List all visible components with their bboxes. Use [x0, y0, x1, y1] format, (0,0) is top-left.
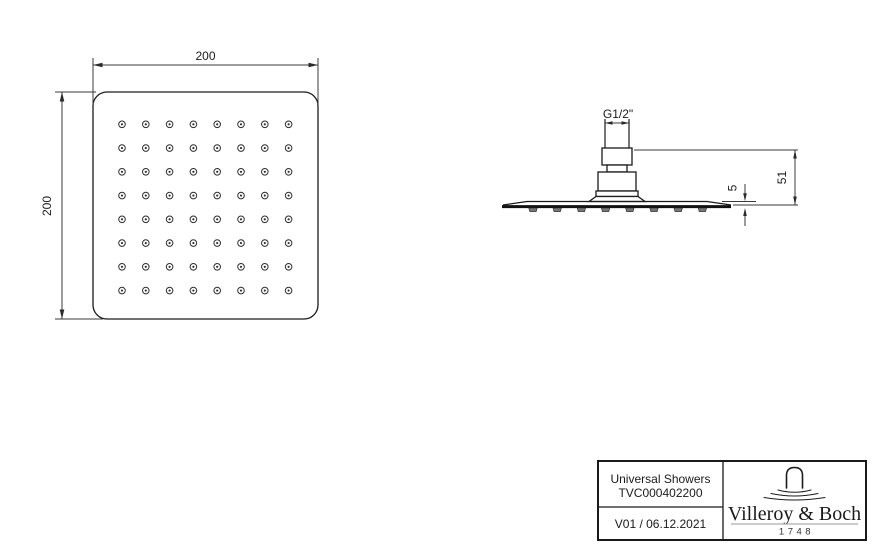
nozzle-center-dot	[216, 194, 218, 196]
nozzle-center-dot	[145, 147, 147, 149]
dimension-overall-height: 51	[634, 150, 798, 205]
nozzle-center-dot	[192, 266, 194, 268]
nozzle-center-dot	[264, 266, 266, 268]
nozzle-center-dot	[240, 242, 242, 244]
arrowhead-left	[93, 63, 103, 68]
nozzle-center-dot	[121, 242, 123, 244]
nozzle-center-dot	[169, 266, 171, 268]
thread-size-label: G1/2"	[603, 107, 633, 121]
nozzle-center-dot	[169, 194, 171, 196]
title-block-info-cell: Universal Showers TVC000402200 V01 / 06.…	[610, 472, 710, 531]
nozzle-center-dot	[192, 218, 194, 220]
dimension-width-label: 200	[195, 49, 215, 63]
nozzle-center-dot	[145, 123, 147, 125]
arrowhead-bottom	[793, 197, 797, 206]
nozzle-center-dot	[192, 289, 194, 291]
nozzle-center-dot	[240, 289, 242, 291]
nozzle-center-dot	[145, 171, 147, 173]
side-view: G1/2" 51	[502, 107, 798, 226]
nozzle-center-dot	[121, 194, 123, 196]
plate-nozzle-bump	[529, 208, 537, 212]
nozzle-center-dot	[121, 266, 123, 268]
nozzle-center-dot	[288, 289, 290, 291]
arrowhead-up	[743, 208, 747, 216]
arrowhead-top	[60, 92, 65, 102]
nozzle-center-dot	[216, 289, 218, 291]
nozzle-center-dot	[288, 194, 290, 196]
nozzle-center-dot	[288, 123, 290, 125]
overall-height-label: 51	[775, 171, 789, 185]
vb-ripple-icon	[764, 498, 825, 501]
nozzle-center-dot	[240, 123, 242, 125]
nozzle-center-dot	[192, 171, 194, 173]
plate-nozzle-bump	[674, 208, 682, 212]
arrowhead-bottom	[60, 310, 65, 320]
nozzle-center-dot	[169, 171, 171, 173]
nozzle-center-dot	[216, 147, 218, 149]
nozzle-center-dot	[264, 147, 266, 149]
nozzle-center-dot	[288, 266, 290, 268]
connector-lower-block	[598, 172, 636, 191]
plate-nozzle-bump	[698, 208, 706, 212]
connector-base-step	[596, 191, 638, 197]
nozzle-center-dot	[216, 123, 218, 125]
dimension-height-label: 200	[40, 196, 54, 216]
nozzle-center-dot	[240, 218, 242, 220]
nozzle-center-dot	[192, 147, 194, 149]
nozzle-center-dot	[145, 266, 147, 268]
shower-plate-top-outline	[93, 92, 318, 319]
nozzle-center-dot	[216, 266, 218, 268]
arrowhead-down	[743, 193, 747, 201]
plate-nozzle-bump	[626, 208, 634, 212]
nozzle-center-dot	[216, 218, 218, 220]
connector-neck	[607, 165, 627, 172]
nozzle-center-dot	[192, 194, 194, 196]
nozzle-center-dot	[169, 147, 171, 149]
top-view: 200 200	[40, 49, 318, 319]
plate-thickness-label: 5	[726, 184, 740, 191]
nozzle-center-dot	[216, 242, 218, 244]
plate-nozzle-bumps	[529, 208, 707, 212]
brand-year-label: 1748	[779, 527, 814, 538]
nozzle-center-dot	[288, 242, 290, 244]
nozzle-center-dot	[240, 147, 242, 149]
nozzle-center-dot	[145, 242, 147, 244]
connector-upper-block	[602, 148, 632, 165]
vb-ripple-icon	[771, 494, 818, 497]
nozzle-center-dot	[145, 218, 147, 220]
article-number-label: TVC000402200	[618, 486, 702, 500]
nozzle-center-dot	[121, 123, 123, 125]
nozzle-center-dot	[288, 147, 290, 149]
nozzle-center-dot	[121, 218, 123, 220]
nozzle-center-dot	[264, 194, 266, 196]
plate-nozzle-bump	[650, 208, 658, 212]
connector-flare	[589, 197, 645, 202]
nozzle-center-dot	[264, 242, 266, 244]
nozzle-center-dot	[240, 194, 242, 196]
nozzle-center-dot	[169, 289, 171, 291]
nozzle-center-dot	[121, 147, 123, 149]
plate-top-surface	[503, 202, 731, 206]
arrowhead-left	[605, 121, 613, 125]
brand-logo: Villeroy & Boch 1748	[728, 468, 861, 538]
vb-faucet-icon	[787, 468, 803, 489]
nozzle-center-dot	[264, 123, 266, 125]
plate-nozzle-bump	[601, 208, 609, 212]
nozzle-center-dot	[240, 266, 242, 268]
nozzle-center-dot	[216, 171, 218, 173]
drawing-sheet: 200 200 G1/2"	[0, 0, 880, 549]
nozzle-center-dot	[192, 242, 194, 244]
technical-drawing-svg: 200 200 G1/2"	[0, 0, 880, 549]
version-date-label: V01 / 06.12.2021	[615, 517, 707, 531]
arrowhead-right	[622, 121, 630, 125]
vb-ripple-icon	[778, 490, 811, 492]
nozzle-center-dot	[288, 218, 290, 220]
nozzle-center-dot	[169, 242, 171, 244]
brand-name-label: Villeroy & Boch	[728, 503, 861, 525]
nozzle-center-dot	[192, 123, 194, 125]
nozzle-center-dot	[145, 194, 147, 196]
nozzle-center-dot	[145, 289, 147, 291]
nozzle-center-dot	[264, 218, 266, 220]
product-line-label: Universal Showers	[610, 472, 710, 486]
arrowhead-right	[309, 63, 319, 68]
nozzle-center-dot	[264, 171, 266, 173]
title-block: Universal Showers TVC000402200 V01 / 06.…	[598, 461, 866, 540]
nozzle-center-dot	[121, 289, 123, 291]
nozzle-center-dot	[240, 171, 242, 173]
arrowhead-top	[793, 150, 797, 159]
nozzle-center-dot	[121, 171, 123, 173]
nozzle-center-dot	[288, 171, 290, 173]
plate-nozzle-bump	[553, 208, 561, 212]
nozzle-center-dot	[264, 289, 266, 291]
plate-nozzle-bump	[577, 208, 585, 212]
nozzle-center-dot	[169, 123, 171, 125]
nozzle-center-dot	[169, 218, 171, 220]
